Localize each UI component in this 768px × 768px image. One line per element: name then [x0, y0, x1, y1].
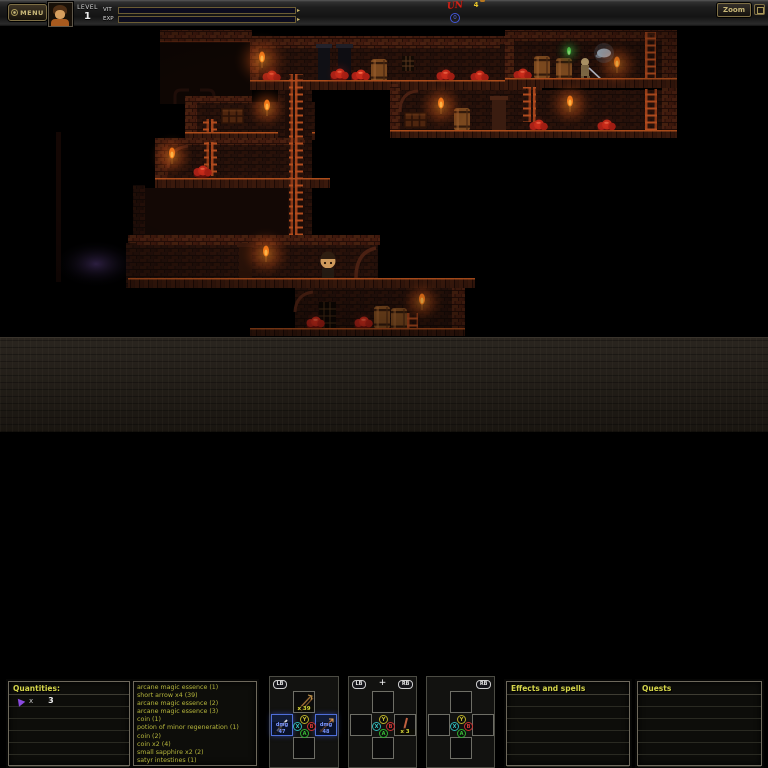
- quantity-row[interactable]: x 3: [9, 695, 129, 707]
- gear-icon: [11, 9, 18, 16]
- stat-bars: VIT ▸ EXP ▸: [103, 6, 300, 24]
- dungeon-map: [0, 27, 768, 337]
- player-avatar[interactable]: [48, 2, 73, 27]
- quantities-panel: Quantities: x 3: [8, 681, 130, 766]
- slot-ranged[interactable]: dmg 48: [315, 714, 337, 736]
- zoom-options-button[interactable]: [754, 4, 765, 15]
- level-indicator: LEVEL 1: [74, 4, 101, 22]
- empty-row: [507, 719, 629, 731]
- inventory-item[interactable]: potion of minor regeneration (1): [137, 724, 253, 732]
- slot-ammo[interactable]: x 39: [293, 691, 315, 713]
- purple-arrow-icon: [15, 696, 26, 706]
- slot-empty[interactable]: [450, 737, 472, 759]
- bottom-hud-bar: Quantities: x 3 arcane magic essence (1)…: [0, 337, 768, 432]
- scroll-counter: UN 0: [447, 1, 463, 23]
- inventory-log-panel: arcane magic essence (1) short arrow x4 …: [133, 681, 257, 766]
- vignette: [0, 27, 768, 337]
- empty-row: [507, 731, 629, 743]
- inventory-item[interactable]: coin x2 (4): [137, 741, 253, 749]
- scroll-count: 0: [450, 13, 460, 23]
- unidentified-mark-icon: UN: [446, 0, 463, 13]
- ammo-count: x 39: [294, 706, 314, 713]
- zoom-button[interactable]: Zoom: [717, 3, 751, 17]
- slot-weapon[interactable]: dmg 47: [271, 714, 293, 736]
- slot-throwing-knife[interactable]: x 3: [394, 714, 416, 736]
- lb-badge: LB: [273, 680, 287, 689]
- exp-bar: [118, 16, 296, 23]
- menu-button-label: MENU: [20, 9, 44, 17]
- knife-count: x 3: [395, 729, 415, 736]
- vit-bar: [118, 7, 296, 14]
- inventory-item[interactable]: arcane magic essence (3): [137, 708, 253, 716]
- empty-row: [638, 755, 761, 767]
- game-viewport[interactable]: [0, 27, 768, 337]
- equip-slot-panel-right: RB Y X B A: [426, 676, 495, 768]
- empty-row: [638, 695, 761, 707]
- quantity-label: x: [29, 697, 33, 705]
- empty-row: [638, 731, 761, 743]
- slot-empty[interactable]: [472, 714, 494, 736]
- empty-row: [9, 719, 129, 731]
- empty-row: [638, 719, 761, 731]
- equip-slot-panel-left: LB x 39 dmg 47 dmg 48: [269, 676, 339, 768]
- controller-b-button: B: [464, 722, 473, 731]
- empty-row: [9, 731, 129, 743]
- exp-label: EXP: [103, 16, 118, 22]
- controller-b-button: B: [386, 722, 395, 731]
- controller-a-button: A: [457, 729, 466, 738]
- slot-empty[interactable]: [450, 691, 472, 713]
- top-hud-bar: MENU LEVEL 1 VIT ▸ EXP ▸ UN 0 4 Zoom: [0, 0, 768, 27]
- level-label: LEVEL: [74, 4, 101, 11]
- avatar-face: [55, 10, 65, 19]
- effects-title: Effects and spells: [507, 682, 629, 695]
- equip-slot-panel-middle: LB + RB x 3 Y X B A: [348, 676, 417, 768]
- inventory-item[interactable]: coin (2): [137, 733, 253, 741]
- empty-row: [507, 695, 629, 707]
- inventory-item[interactable]: arcane magic essence (2): [137, 700, 253, 708]
- coin-counter: 4: [468, 1, 484, 23]
- empty-row: [9, 743, 129, 755]
- level-value: 1: [74, 11, 101, 22]
- empty-row: [507, 743, 629, 755]
- coin-count: 4: [468, 1, 484, 10]
- vit-bar-cap-icon: ▸: [297, 8, 300, 13]
- empty-row: [9, 755, 129, 767]
- quantity-value: 3: [48, 696, 54, 705]
- ranged-damage: dmg 48: [316, 722, 336, 735]
- inventory-item[interactable]: small sapphire x2 (2): [137, 749, 253, 757]
- inventory-item[interactable]: coin (1): [137, 716, 253, 724]
- empty-row: [507, 755, 629, 767]
- slot-empty[interactable]: [372, 737, 394, 759]
- slot-empty[interactable]: [428, 714, 450, 736]
- slot-empty[interactable]: [372, 691, 394, 713]
- quantities-title: Quantities:: [9, 682, 129, 695]
- controller-a-button: A: [300, 729, 309, 738]
- quests-title: Quests: [638, 682, 761, 695]
- controller-a-button: A: [379, 729, 388, 738]
- empty-row: [638, 707, 761, 719]
- rb-badge: RB: [398, 680, 413, 689]
- quests-panel: Quests: [637, 681, 762, 766]
- effects-panel: Effects and spells: [506, 681, 630, 766]
- slot-empty[interactable]: [293, 737, 315, 759]
- controller-b-button: B: [307, 722, 316, 731]
- avatar-shirt: [51, 19, 69, 26]
- inventory-item[interactable]: arcane magic essence (1): [137, 684, 253, 692]
- empty-row: [638, 743, 761, 755]
- inventory-item[interactable]: satyr intestines (1): [137, 757, 253, 765]
- empty-row: [507, 707, 629, 719]
- vit-label: VIT: [103, 7, 118, 13]
- inventory-item[interactable]: short arrow x4 (39): [137, 692, 253, 700]
- rb-badge: RB: [476, 680, 491, 689]
- menu-button[interactable]: MENU: [8, 4, 47, 21]
- empty-row: [9, 707, 129, 719]
- resource-counters: UN 0 4: [447, 1, 484, 23]
- exp-bar-cap-icon: ▸: [297, 17, 300, 22]
- slot-empty[interactable]: [350, 714, 372, 736]
- weapon-damage: dmg 47: [272, 722, 292, 735]
